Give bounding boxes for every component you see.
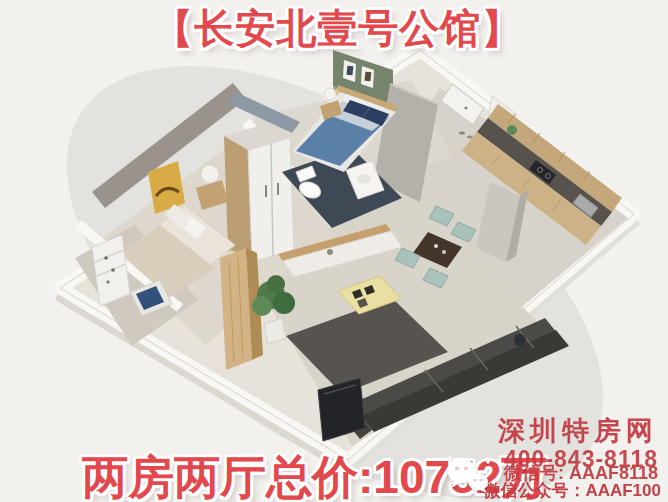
shelf-item xyxy=(104,256,108,260)
sofa-pillow xyxy=(514,334,526,346)
basin xyxy=(358,175,371,184)
tableware xyxy=(434,244,438,248)
watermark-site-name: 深圳特房网 xyxy=(498,413,658,449)
bedside-lamp xyxy=(201,165,219,183)
counter-plant xyxy=(507,125,517,135)
door-handle xyxy=(464,106,467,109)
wechat-icon xyxy=(446,456,490,494)
bedside-lamp xyxy=(324,88,336,100)
page-title: 【长安北壹号公馆】 xyxy=(153,1,522,56)
tableware xyxy=(442,250,446,254)
watermark-wechat-public: 微信公众号：AAAF100 xyxy=(483,479,661,502)
entry-shoes xyxy=(467,135,473,138)
entry-shoes xyxy=(459,131,465,134)
plant-foliage xyxy=(252,296,272,316)
shelf-item xyxy=(106,280,110,284)
promo-image: 【长安北壹号公馆】 两房两厅总价:10752万 深圳特房网 400-843-81… xyxy=(0,0,668,502)
shelf-item xyxy=(111,268,115,272)
cabinet-decor xyxy=(327,249,333,255)
watermark: 深圳特房网 400-843-8118 微信号: AAAF8118 微信公众号：A… xyxy=(384,408,662,502)
plant-foliage xyxy=(273,292,295,314)
frame-print xyxy=(364,72,371,82)
frame-print xyxy=(346,66,353,76)
plant-foliage xyxy=(267,275,285,293)
